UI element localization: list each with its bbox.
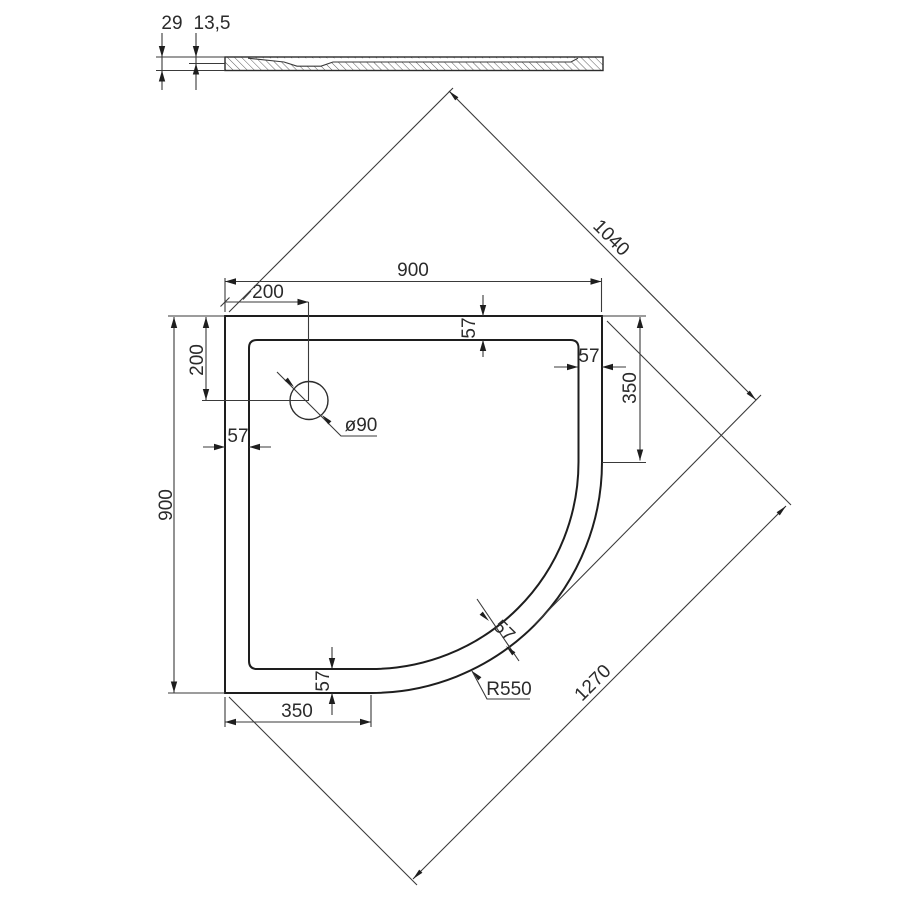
dim-29: 29 — [159, 13, 183, 90]
dim-29-label: 29 — [161, 13, 182, 34]
dim-57-left-bottom-label: 57 — [227, 426, 248, 447]
dim-57-top-label: 57 — [459, 317, 480, 338]
drawing-canvas: 29 13,5 900 — [0, 0, 900, 900]
dim-57-arc-label: 57 — [489, 616, 519, 646]
dim-350-right-label: 350 — [620, 372, 641, 404]
shower-tray-drawing: 29 13,5 900 — [0, 0, 900, 900]
dim-57-left-bottom: 57 — [203, 426, 271, 450]
dim-diameter-90-label: ø90 — [345, 415, 378, 436]
dim-57-bottom: 57 — [313, 647, 335, 715]
dim-57-right-label: 57 — [578, 346, 599, 367]
tray-inner-edge — [249, 340, 579, 669]
dim-13-5-label: 13,5 — [194, 13, 231, 34]
tray-outer-edge — [225, 316, 602, 693]
dim-200-top-label: 200 — [252, 282, 284, 303]
dim-350-bottom: 350 — [225, 695, 371, 727]
dim-radius-550-label: R550 — [486, 679, 531, 700]
dim-200-top: 200 — [221, 282, 309, 307]
dim-57-arc: 57 — [477, 599, 519, 661]
dim-57-bottom-label: 57 — [313, 670, 334, 691]
dim-200-left-label: 200 — [187, 344, 208, 376]
dim-57-right: 57 — [554, 346, 626, 370]
dim-350-bottom-label: 350 — [281, 701, 313, 722]
section-view: 29 13,5 — [156, 13, 603, 90]
dim-1270-diagonal: 1270 — [229, 321, 791, 885]
dim-200-left: 200 — [187, 317, 209, 400]
plan-view: 900 200 200 900 — [156, 88, 791, 885]
dim-900-left: 900 — [156, 317, 177, 693]
dim-57-top: 57 — [459, 295, 486, 357]
dim-13-5: 13,5 — [193, 13, 231, 90]
dim-900-top-label: 900 — [397, 260, 429, 281]
dim-900-left-label: 900 — [156, 489, 177, 521]
dim-radius-550: R550 — [472, 671, 532, 700]
